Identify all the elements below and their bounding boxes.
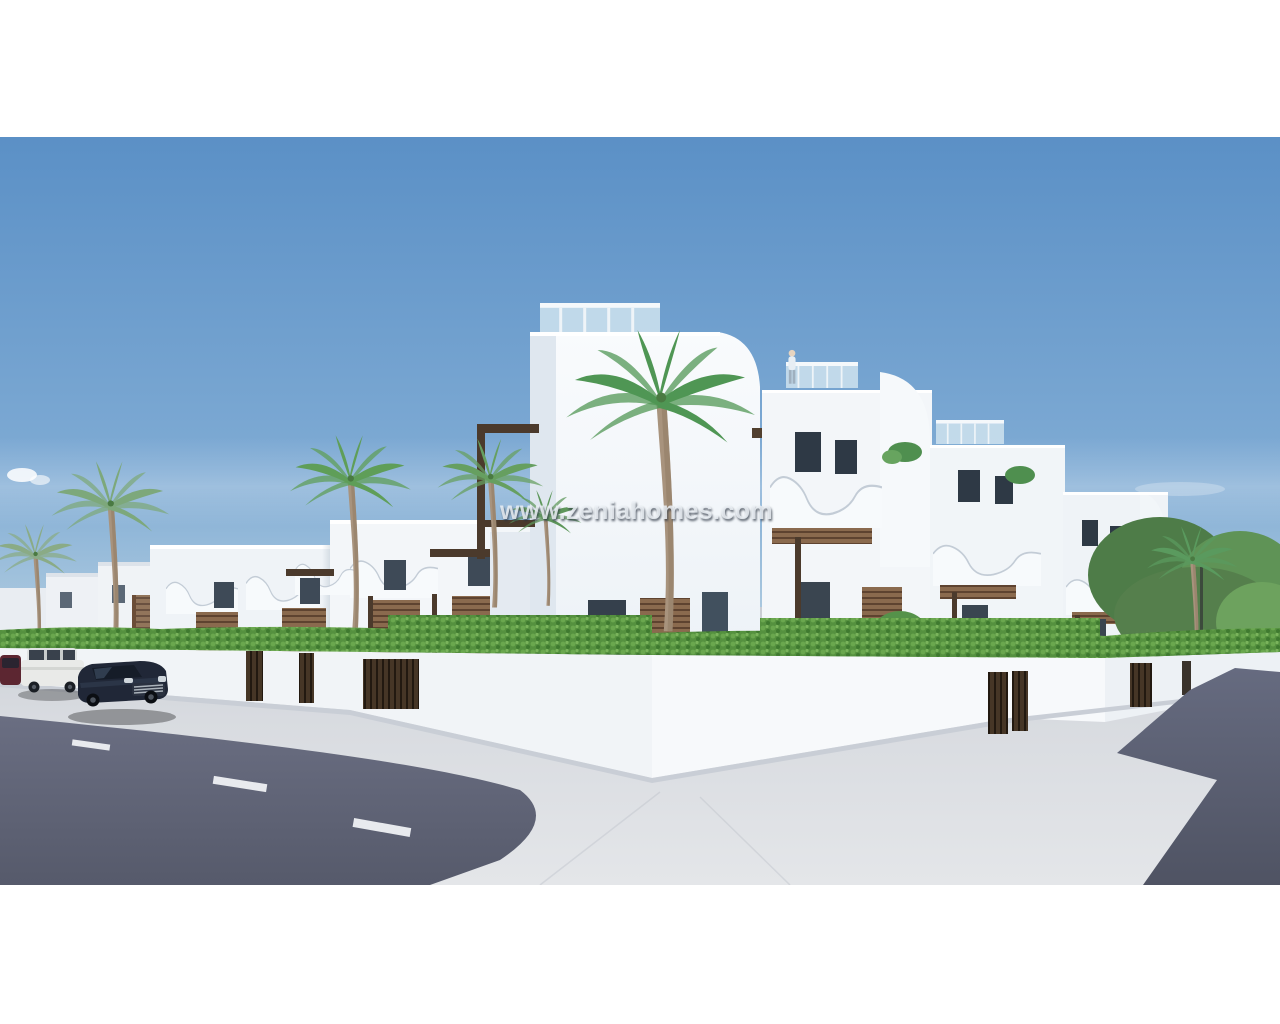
rooftop-glass-balustrade [936,420,1004,444]
rooftop-glass-balustrade [786,362,858,388]
car-maroon [0,655,21,685]
rooftop-glass-balustrade [540,303,660,335]
car-black-sedan [78,661,168,707]
car-white-suv [21,648,84,693]
watermark-text: www.zeniahomes.com [500,497,800,526]
property-render-photo: www.zeniahomes.com [0,137,1280,885]
page: www.zeniahomes.com [0,0,1280,1024]
